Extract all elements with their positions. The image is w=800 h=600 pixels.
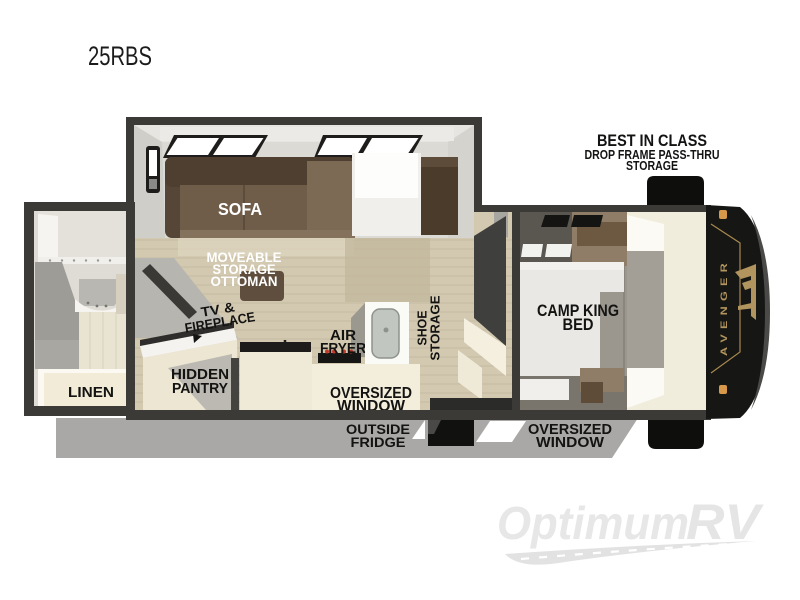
svg-text:LINEN: LINEN (68, 384, 114, 401)
svg-text:25RBS: 25RBS (88, 41, 152, 71)
svg-text:FRYER: FRYER (320, 341, 366, 357)
svg-text:SOFA: SOFA (218, 199, 262, 219)
svg-text:WINDOW: WINDOW (536, 435, 604, 451)
svg-text:Optimum: Optimum (497, 497, 689, 549)
svg-text:STORAGE: STORAGE (626, 159, 678, 173)
svg-text:SHOE: SHOE (416, 311, 430, 346)
svg-text:AVENGER: AVENGER (719, 258, 730, 356)
svg-text:STORAGE: STORAGE (429, 296, 443, 361)
svg-text:BED: BED (563, 316, 594, 334)
svg-text:OTTOMAN: OTTOMAN (211, 274, 278, 289)
svg-text:PANTRY: PANTRY (172, 380, 228, 397)
svg-text:RV: RV (686, 494, 764, 550)
svg-text:FRIDGE: FRIDGE (351, 434, 406, 450)
